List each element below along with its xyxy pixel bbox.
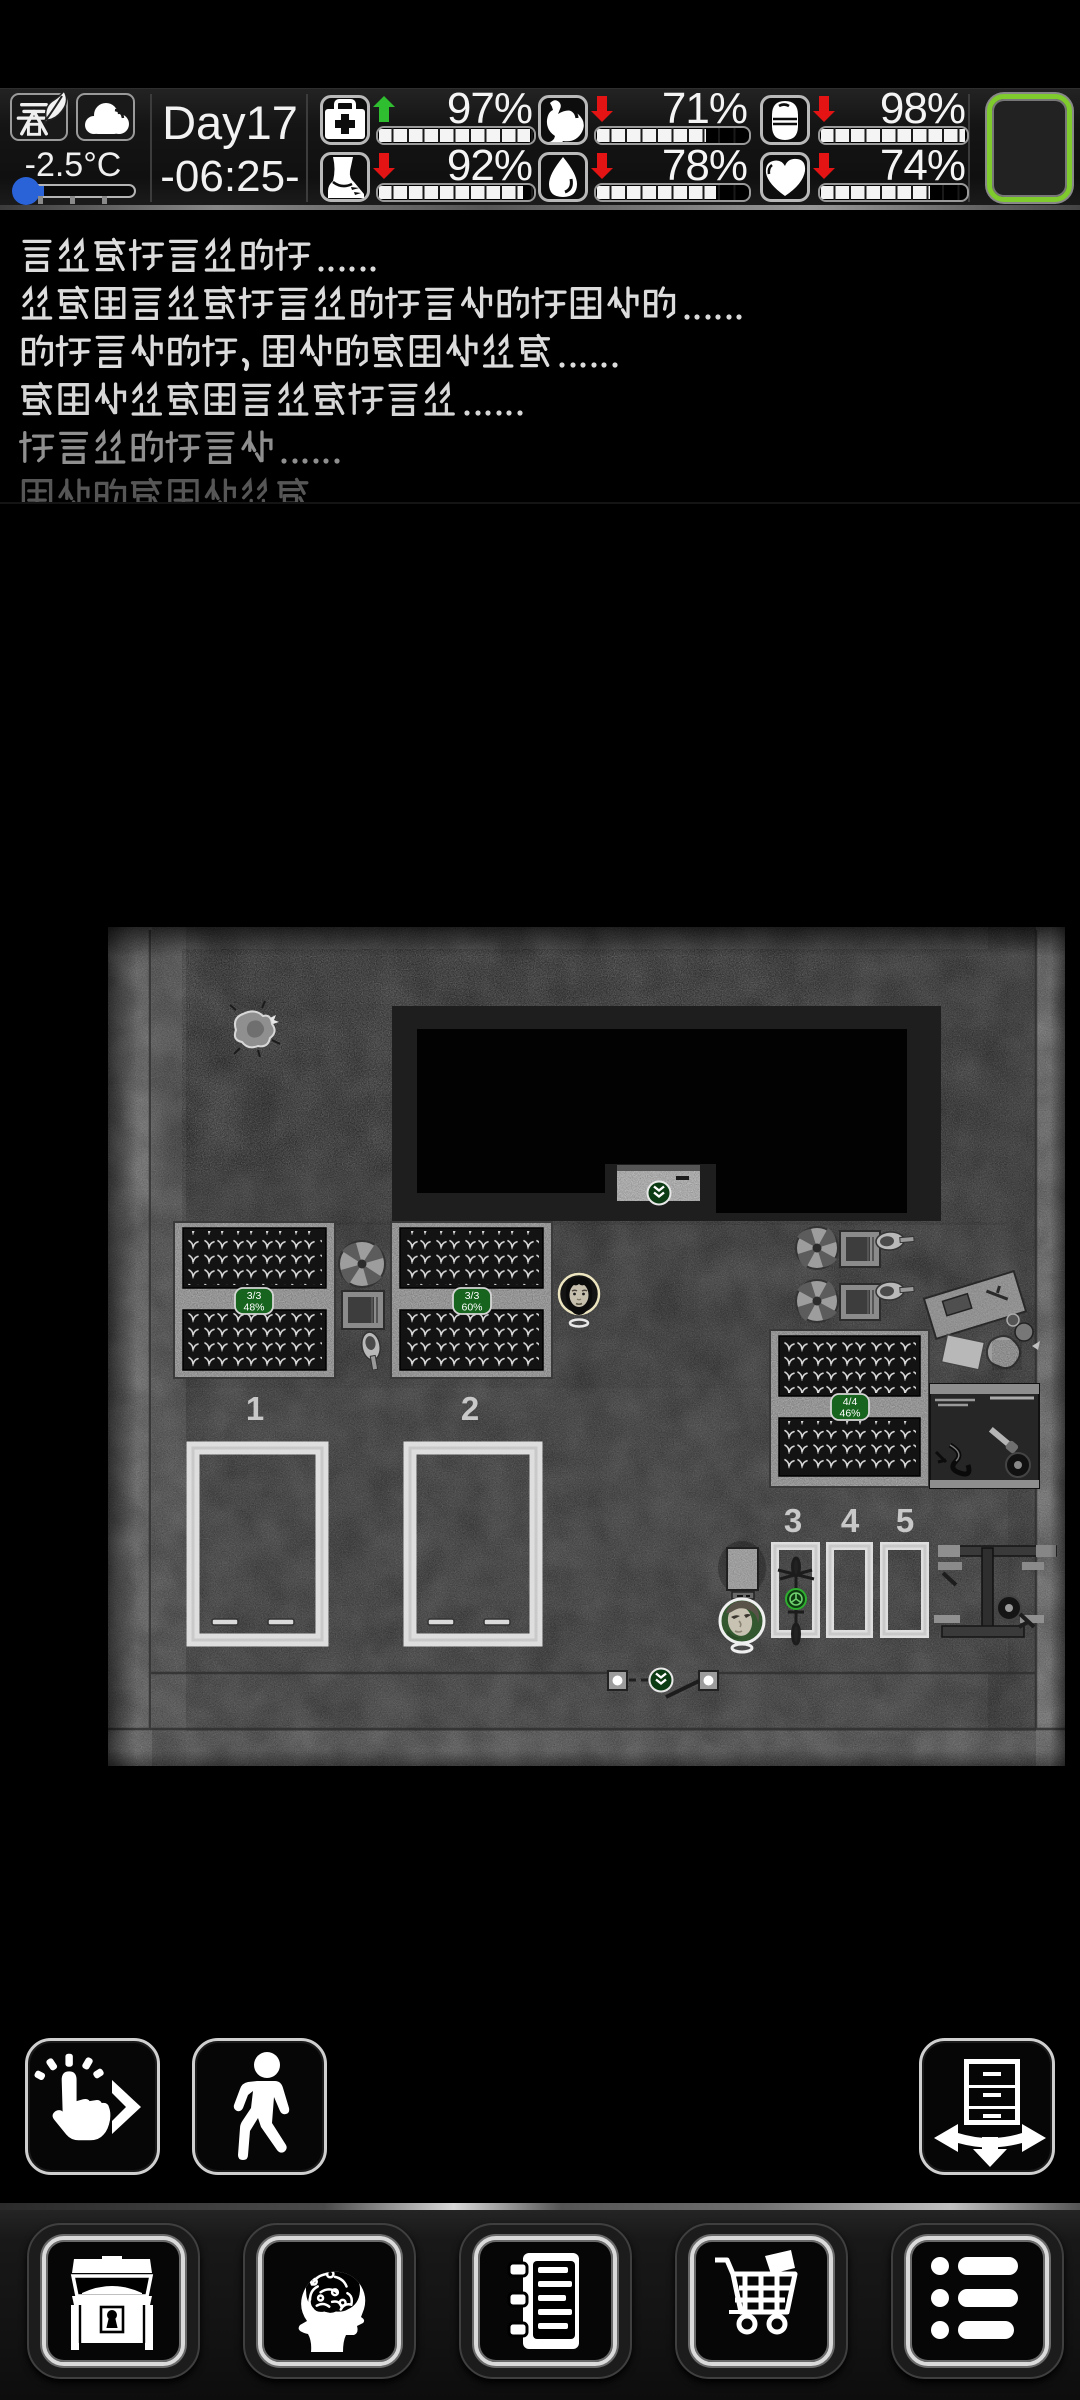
svg-text:46%: 46% xyxy=(839,1408,860,1420)
svg-text:1: 1 xyxy=(246,1390,264,1427)
svg-text:4: 4 xyxy=(841,1502,860,1539)
svg-text:3: 3 xyxy=(784,1502,802,1539)
svg-text:3/3: 3/3 xyxy=(465,1290,480,1302)
svg-text:4/4: 4/4 xyxy=(843,1396,858,1408)
svg-text:2: 2 xyxy=(461,1390,479,1427)
svg-text:48%: 48% xyxy=(243,1302,264,1314)
svg-text:5: 5 xyxy=(896,1502,914,1539)
svg-text:3/3: 3/3 xyxy=(247,1290,262,1302)
svg-text:60%: 60% xyxy=(461,1302,482,1314)
